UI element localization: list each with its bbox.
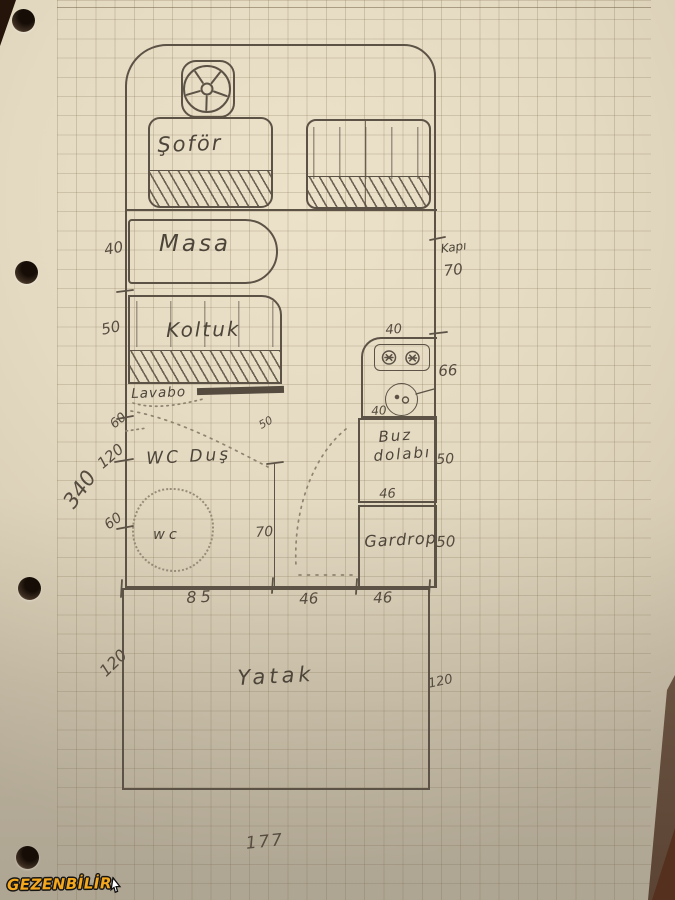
photographed-graph-paper-sketch: Şoför Masa 40 Koltuk 50 Lavabo WC Duş wc… bbox=[0, 0, 675, 900]
shower-room-label: WC Duş bbox=[146, 447, 232, 468]
driver-seat-hatch bbox=[150, 170, 271, 206]
corridor-length-line bbox=[274, 463, 275, 588]
stove-box bbox=[374, 344, 430, 371]
sofa-label: Koltuk bbox=[166, 319, 241, 340]
top-margin-line bbox=[57, 7, 651, 8]
passenger-seat-pleats bbox=[313, 127, 424, 179]
passenger-seat bbox=[306, 119, 431, 209]
table-label: Masa bbox=[159, 233, 231, 256]
entry-door-width-dim: 70 bbox=[443, 262, 464, 279]
overall-width-dim: 177 bbox=[245, 832, 285, 853]
fridge-depth-dim: 50 bbox=[436, 452, 455, 467]
gezenbilir-watermark: GEZENBİLİR bbox=[7, 871, 123, 896]
punch-hole bbox=[12, 9, 35, 32]
wardrobe-depth-dim: 50 bbox=[436, 534, 456, 550]
corridor-length-dim: 70 bbox=[255, 525, 274, 540]
punch-hole bbox=[15, 261, 38, 284]
fridge-label-line2: dolabı bbox=[373, 445, 432, 464]
cab-divider-line bbox=[126, 209, 437, 211]
toilet-label: wc bbox=[153, 528, 181, 543]
driver-seat-label: Şoför bbox=[157, 133, 223, 156]
bed-label: Yatak bbox=[237, 664, 315, 689]
punch-hole bbox=[18, 577, 41, 600]
sofa-hatch bbox=[130, 350, 280, 382]
passenger-seat-hatch bbox=[308, 176, 429, 207]
counter-length-dim: 66 bbox=[438, 363, 458, 379]
sink-label: Lavabo bbox=[131, 386, 186, 401]
cursor-icon bbox=[108, 876, 124, 895]
sink-basin bbox=[385, 383, 418, 416]
sink-width-dim: 40 bbox=[371, 404, 387, 417]
wardrobe-label: Gardrop bbox=[364, 530, 437, 550]
watermark-text: GEZENBİLİR bbox=[7, 874, 112, 894]
entry-door-label: Kapı bbox=[440, 239, 467, 254]
sofa-depth-dim: 50 bbox=[100, 319, 122, 338]
table-depth-dim: 40 bbox=[103, 240, 124, 258]
stove-width-dim: 40 bbox=[385, 323, 402, 337]
fridge-width-dim: 46 bbox=[379, 487, 396, 501]
punch-hole bbox=[16, 846, 39, 869]
fridge-label-line1: Buz bbox=[378, 428, 413, 445]
bed-box bbox=[122, 588, 430, 790]
